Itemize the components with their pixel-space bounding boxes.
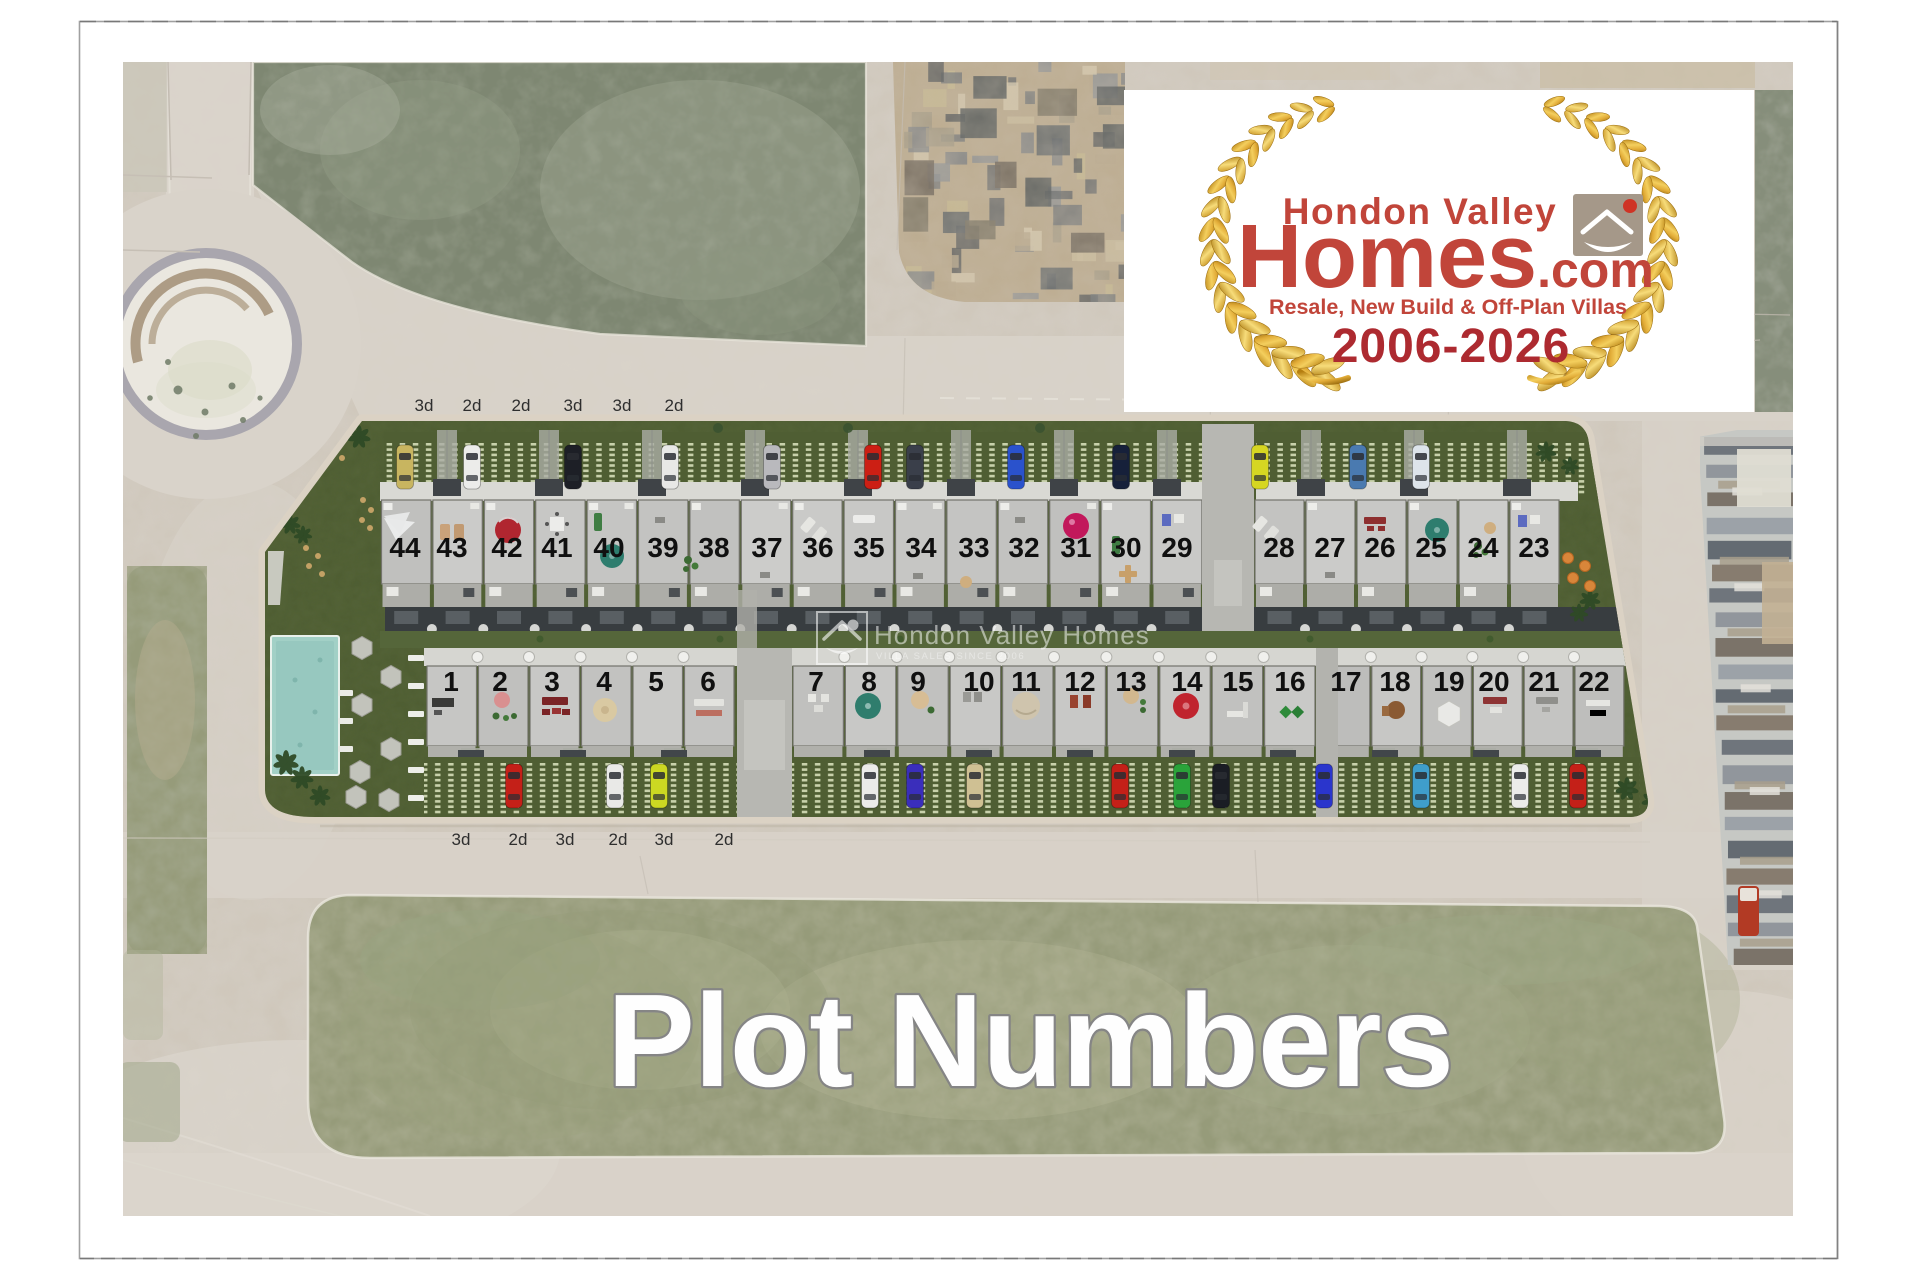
svg-text:34: 34 — [905, 532, 937, 563]
svg-text:2d: 2d — [715, 830, 734, 849]
svg-text:36: 36 — [802, 532, 833, 563]
svg-text:7: 7 — [808, 666, 824, 697]
svg-text:16: 16 — [1274, 666, 1305, 697]
svg-text:13: 13 — [1115, 666, 1146, 697]
svg-text:5: 5 — [648, 666, 664, 697]
svg-text:28: 28 — [1263, 532, 1294, 563]
svg-text:2d: 2d — [463, 396, 482, 415]
svg-text:15: 15 — [1222, 666, 1253, 697]
svg-text:21: 21 — [1528, 666, 1559, 697]
svg-text:3d: 3d — [564, 396, 583, 415]
svg-text:40: 40 — [593, 532, 624, 563]
svg-text:35: 35 — [853, 532, 884, 563]
svg-text:14: 14 — [1171, 666, 1203, 697]
svg-text:2d: 2d — [665, 396, 684, 415]
svg-text:3d: 3d — [613, 396, 632, 415]
svg-text:20: 20 — [1478, 666, 1509, 697]
svg-text:17: 17 — [1330, 666, 1361, 697]
svg-text:26: 26 — [1364, 532, 1395, 563]
svg-text:38: 38 — [698, 532, 729, 563]
svg-text:Plot Numbers: Plot Numbers — [607, 967, 1453, 1114]
svg-text:2: 2 — [492, 666, 508, 697]
svg-text:25: 25 — [1415, 532, 1446, 563]
svg-text:41: 41 — [541, 532, 572, 563]
svg-text:4: 4 — [596, 666, 612, 697]
svg-text:44: 44 — [389, 532, 421, 563]
svg-text:3d: 3d — [556, 830, 575, 849]
svg-text:2d: 2d — [509, 830, 528, 849]
svg-text:Resale, New Build & Off-Plan V: Resale, New Build & Off-Plan Villas — [1269, 295, 1627, 319]
svg-text:VILLA SALES SINCE 2006: VILLA SALES SINCE 2006 — [876, 651, 1025, 662]
svg-text:30: 30 — [1110, 532, 1141, 563]
svg-text:3d: 3d — [452, 830, 471, 849]
svg-text:29: 29 — [1161, 532, 1192, 563]
svg-text:27: 27 — [1314, 532, 1345, 563]
svg-text:42: 42 — [491, 532, 522, 563]
svg-text:32: 32 — [1008, 532, 1039, 563]
svg-text:22: 22 — [1578, 666, 1609, 697]
svg-text:Hondon Valley Homes: Hondon Valley Homes — [874, 620, 1150, 650]
svg-text:11: 11 — [1011, 666, 1041, 697]
svg-text:39: 39 — [647, 532, 678, 563]
svg-text:9: 9 — [910, 666, 926, 697]
svg-text:33: 33 — [958, 532, 989, 563]
svg-text:6: 6 — [700, 666, 716, 697]
svg-text:2d: 2d — [512, 396, 531, 415]
svg-text:24: 24 — [1467, 532, 1499, 563]
svg-text:8: 8 — [861, 666, 877, 697]
svg-text:10: 10 — [963, 666, 994, 697]
svg-text:19: 19 — [1433, 666, 1464, 697]
svg-text:2006-2026: 2006-2026 — [1332, 320, 1571, 373]
svg-text:2d: 2d — [609, 830, 628, 849]
svg-text:3: 3 — [544, 666, 560, 697]
svg-text:37: 37 — [751, 532, 782, 563]
svg-text:43: 43 — [436, 532, 467, 563]
svg-text:18: 18 — [1379, 666, 1410, 697]
svg-text:3d: 3d — [415, 396, 434, 415]
svg-text:23: 23 — [1518, 532, 1549, 563]
svg-text:1: 1 — [443, 666, 459, 697]
svg-text:3d: 3d — [655, 830, 674, 849]
svg-text:31: 31 — [1060, 532, 1091, 563]
svg-text:12: 12 — [1064, 666, 1095, 697]
